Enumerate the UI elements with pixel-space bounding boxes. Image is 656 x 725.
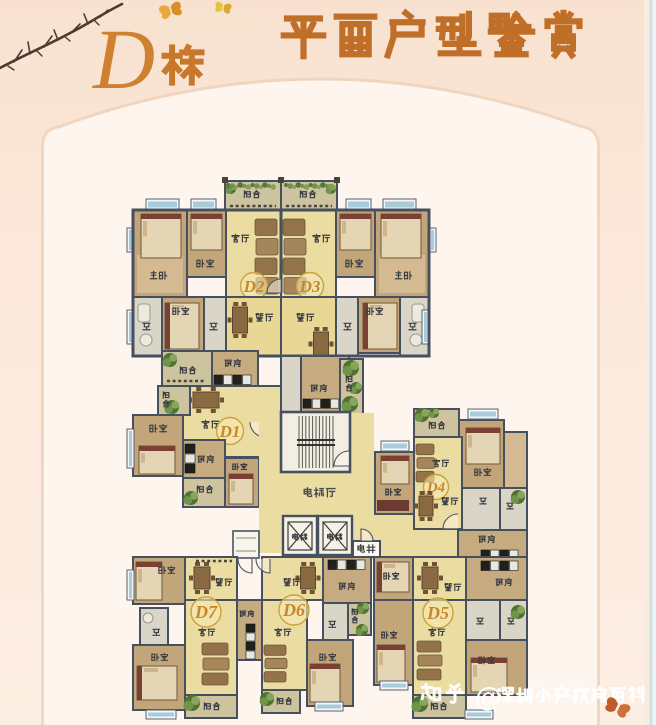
svg-text:D6: D6 <box>282 600 305 620</box>
svg-text:D2: D2 <box>243 277 265 296</box>
svg-text:D3: D3 <box>299 277 321 296</box>
svg-text:D5: D5 <box>426 603 449 623</box>
svg-text:D: D <box>92 11 155 107</box>
svg-text:D1: D1 <box>219 422 241 441</box>
svg-text:D7: D7 <box>194 602 218 622</box>
svg-text:@: @ <box>475 682 501 712</box>
